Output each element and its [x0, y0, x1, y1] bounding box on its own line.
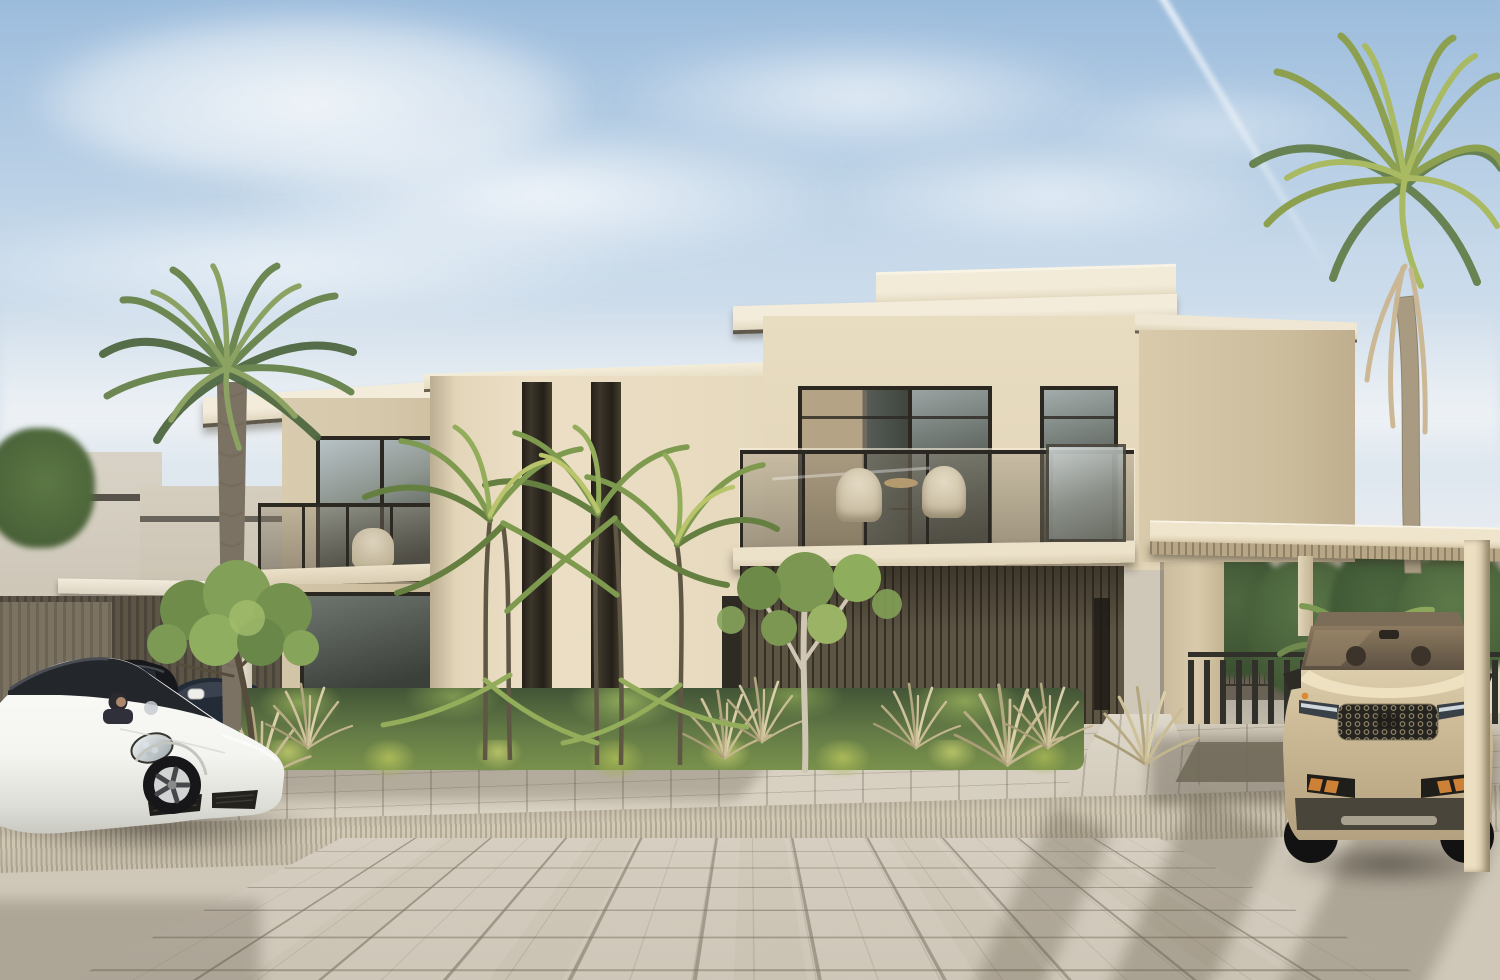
transom-bar — [802, 416, 914, 419]
corner-glass-panel — [1046, 444, 1126, 542]
tall-palm-tree — [1235, 28, 1500, 588]
skid-plate — [1341, 816, 1437, 825]
shrub — [0, 428, 95, 548]
badge-area — [1377, 714, 1399, 728]
young-tree — [655, 538, 955, 773]
seat — [1346, 646, 1366, 666]
palm-fronds — [1253, 36, 1500, 432]
rearview-mirror — [1379, 630, 1399, 639]
side-mirror — [1283, 668, 1301, 690]
steering-reflection — [144, 701, 158, 715]
white-sports-coupe — [0, 645, 300, 843]
roof — [1313, 612, 1465, 628]
rattan-chair — [922, 466, 966, 518]
tree-foliage — [717, 552, 902, 646]
side-mirror — [188, 689, 204, 699]
indicator — [1302, 693, 1309, 700]
rattan-chair — [836, 468, 882, 522]
foreground-shadow — [0, 900, 260, 980]
balcony-side-table — [884, 478, 918, 488]
canopy-pillar — [1464, 540, 1490, 872]
transom-bar — [1044, 416, 1114, 419]
seat — [1411, 646, 1431, 666]
transom-bar — [912, 416, 988, 419]
architectural-render-scene — [0, 0, 1500, 980]
lower-bumper — [1295, 798, 1483, 830]
